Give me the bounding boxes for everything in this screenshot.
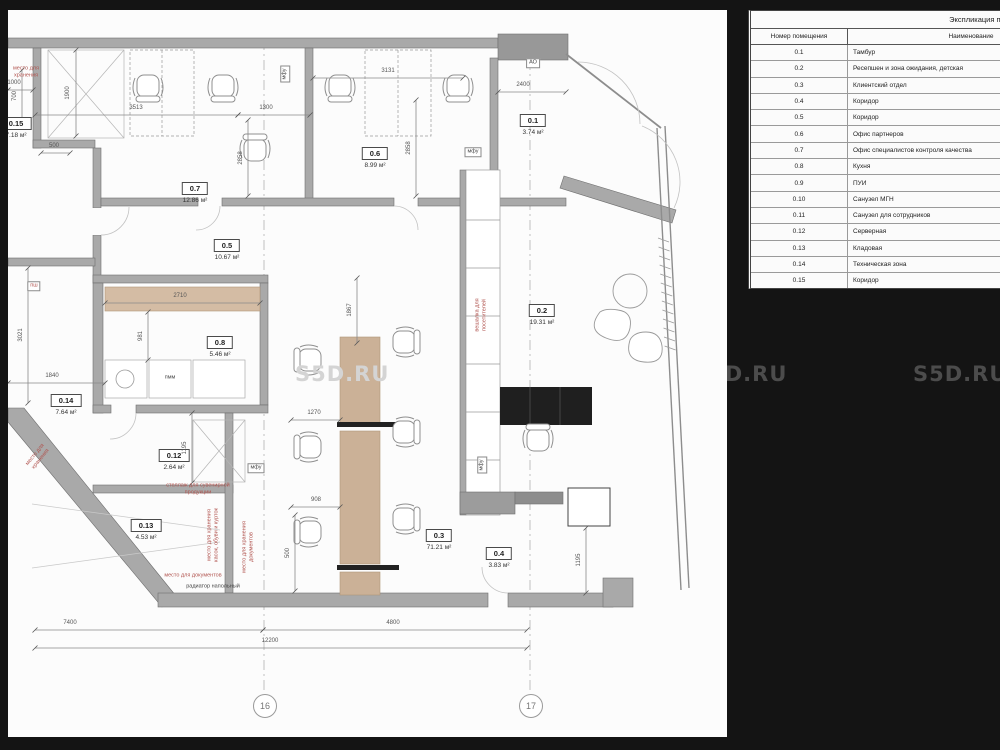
dimension-label: 500 — [49, 143, 59, 149]
equipment-label: мфу — [465, 147, 482, 157]
grid-bubble: 16 — [253, 694, 277, 718]
red-annotation: место для хранения документов — [241, 521, 254, 573]
room-area: 3.83 м² — [486, 562, 512, 569]
table-row: 0.8Кухня — [751, 159, 1000, 175]
room-area: 71.21 м² — [426, 544, 452, 551]
room-area: 3.74 м² — [520, 129, 546, 136]
dimension-label: 1300 — [259, 105, 272, 111]
dimension-label: 1867 — [347, 303, 353, 316]
room-name-cell: Офис специалистов контроля качества — [848, 143, 1000, 158]
room-number: 0.15 — [8, 117, 31, 130]
table-body: 0.1Тамбур0.2Ресепшен и зона ожидания, де… — [751, 45, 1000, 289]
table-row: 0.7Офис специалистов контроля качества — [751, 143, 1000, 159]
dimension-label: 2400 — [516, 82, 529, 88]
dimension-label: 4800 — [386, 620, 399, 626]
equipment-label: мфу — [248, 463, 265, 473]
dimension-label: 3513 — [129, 105, 142, 111]
table-row: 0.3Клиентский отдел — [751, 78, 1000, 94]
room-number: 0.1 — [520, 114, 546, 127]
table-header-name: Наименование — [848, 29, 1000, 44]
room-area: 7.64 м² — [51, 409, 82, 416]
red-annotation: вешалка для посетителей — [474, 298, 487, 331]
room-name-cell: Клиентский отдел — [848, 78, 1000, 93]
room-number-cell: 0.1 — [751, 45, 848, 60]
table-row: 0.1Тамбур — [751, 45, 1000, 61]
dimension-label: 908 — [311, 497, 321, 503]
equipment-label: АО — [526, 58, 540, 68]
room-number: 0.2 — [529, 304, 555, 317]
equipment-label: радиатор напольный — [186, 584, 240, 590]
table-title-text: Экспликация помещений — [949, 15, 1000, 24]
room-label: 0.371.21 м² — [426, 525, 452, 551]
room-name-cell: Коридор — [848, 94, 1000, 109]
dimension-label: 7400 — [63, 620, 76, 626]
table-row: 0.2Ресепшен и зона ожидания, детская — [751, 61, 1000, 77]
room-number: 0.8 — [207, 336, 233, 349]
grid-bubble: 17 — [519, 694, 543, 718]
room-name-cell: Санузел для сотрудников — [848, 208, 1000, 223]
room-number: 0.13 — [131, 519, 162, 532]
table-row: 0.11Санузел для сотрудников — [751, 208, 1000, 224]
room-name-cell: Техническая зона — [848, 257, 1000, 272]
room-number-cell: 0.2 — [751, 61, 848, 76]
room-label: 0.510.67 м² — [214, 235, 240, 261]
room-number-cell: 0.3 — [751, 78, 848, 93]
room-label: 0.134.53 м² — [131, 515, 162, 541]
room-name-cell: Кухня — [848, 159, 1000, 174]
room-name-cell: ПУИ — [848, 175, 1000, 190]
table-row: 0.6Офис партнеров — [751, 126, 1000, 142]
room-number-cell: 0.15 — [751, 273, 848, 288]
equipment-label: пмм — [165, 375, 176, 381]
room-number: 0.5 — [214, 239, 240, 252]
room-area: 2.64 м² — [159, 464, 190, 471]
dimension-label: 981 — [138, 331, 144, 341]
table-row: 0.13Кладовая — [751, 241, 1000, 257]
room-label: 0.43.83 м² — [486, 543, 512, 569]
room-label: 0.219.31 м² — [529, 300, 555, 326]
room-number-cell: 0.12 — [751, 224, 848, 239]
room-number-cell: 0.9 — [751, 175, 848, 190]
room-area: 7.18 м² — [8, 132, 31, 139]
table-row: 0.9ПУИ — [751, 175, 1000, 191]
floor-plan: 0.157.18 м²0.712.86 м²0.510.67 м²0.68.99… — [8, 10, 727, 737]
room-label: 0.85.46 м² — [207, 332, 233, 358]
room-name-cell: Серверная — [848, 224, 1000, 239]
table-row: 0.14Техническая зона — [751, 257, 1000, 273]
table-header: Номер помещения Наименование — [751, 29, 1000, 45]
room-label: 0.13.74 м² — [520, 110, 546, 136]
red-annotation: место для хранения — [25, 443, 52, 472]
room-number: 0.7 — [182, 182, 208, 195]
table-row: 0.10Санузел МГН — [751, 192, 1000, 208]
dimension-label: 1270 — [307, 410, 320, 416]
room-name-cell: Коридор — [848, 110, 1000, 125]
dimension-label: 1195 — [182, 442, 188, 455]
dimension-label: 2858 — [406, 141, 412, 154]
room-name-cell: Офис партнеров — [848, 126, 1000, 141]
room-name-cell: Санузел МГН — [848, 192, 1000, 207]
table-row: 0.15Коридор — [751, 273, 1000, 289]
equipment-label: мфу — [280, 66, 290, 83]
table-row: 0.4Коридор — [751, 94, 1000, 110]
plan-labels: 0.157.18 м²0.712.86 м²0.510.67 м²0.68.99… — [8, 10, 727, 737]
room-number: 0.14 — [51, 394, 82, 407]
dimension-label: 1195 — [576, 554, 582, 567]
equipment-label: мфу — [477, 457, 487, 474]
table-header-number: Номер помещения — [751, 29, 848, 44]
room-label: 0.68.99 м² — [362, 143, 388, 169]
table-title: Экспликация помещений — [751, 11, 1000, 29]
room-area: 5.46 м² — [207, 351, 233, 358]
red-annotation: место для документов — [164, 573, 221, 580]
table-row: 0.5Коридор — [751, 110, 1000, 126]
red-annotation: стеллаж для сувенирной продукции — [166, 482, 229, 495]
dimension-label: 1000 — [8, 80, 21, 86]
dimension-label: 500 — [285, 548, 291, 558]
room-name-cell: Кладовая — [848, 241, 1000, 256]
explication-table: Экспликация помещений Номер помещения На… — [748, 10, 1000, 289]
watermark: S5D.RU — [295, 362, 389, 386]
dimension-label: 1840 — [45, 373, 58, 379]
room-number-cell: 0.13 — [751, 241, 848, 256]
red-annotation: место для хранения касок, обуви и курток — [206, 508, 219, 562]
dimension-label: 1900 — [65, 86, 71, 99]
room-number-cell: 0.7 — [751, 143, 848, 158]
room-number-cell: 0.14 — [751, 257, 848, 272]
watermark: S5D.RU — [913, 362, 1000, 386]
room-label: 0.712.86 м² — [182, 178, 208, 204]
room-area: 8.99 м² — [362, 162, 388, 169]
room-number-cell: 0.11 — [751, 208, 848, 223]
room-area: 19.31 м² — [529, 319, 555, 326]
table-row: 0.12Серверная — [751, 224, 1000, 240]
room-area: 12.86 м² — [182, 197, 208, 204]
room-number: 0.4 — [486, 547, 512, 560]
room-label: 0.157.18 м² — [8, 113, 31, 139]
room-number-cell: 0.6 — [751, 126, 848, 141]
room-name-cell: Коридор — [848, 273, 1000, 288]
room-number-cell: 0.5 — [751, 110, 848, 125]
dimension-label: 700 — [12, 91, 18, 101]
room-label: 0.147.64 м² — [51, 390, 82, 416]
room-number-cell: 0.10 — [751, 192, 848, 207]
room-number: 0.3 — [426, 529, 452, 542]
dimension-label: 2710 — [173, 293, 186, 299]
room-number-cell: 0.8 — [751, 159, 848, 174]
dimension-label: 2858 — [238, 151, 244, 164]
dimension-label: 12200 — [262, 638, 279, 644]
room-number: 0.6 — [362, 147, 388, 160]
dimension-label: 3021 — [18, 328, 24, 341]
room-area: 4.53 м² — [131, 534, 162, 541]
room-area: 10.67 м² — [214, 254, 240, 261]
dimension-label: 3131 — [381, 68, 394, 74]
room-name-cell: Ресепшен и зона ожидания, детская — [848, 61, 1000, 76]
room-number-cell: 0.4 — [751, 94, 848, 109]
red-annotation: место для хранения — [13, 65, 39, 78]
equipment-label: пш — [27, 281, 40, 291]
screenshot-stage: S5D.RUS5D.RU — [0, 0, 1000, 750]
room-name-cell: Тамбур — [848, 45, 1000, 60]
